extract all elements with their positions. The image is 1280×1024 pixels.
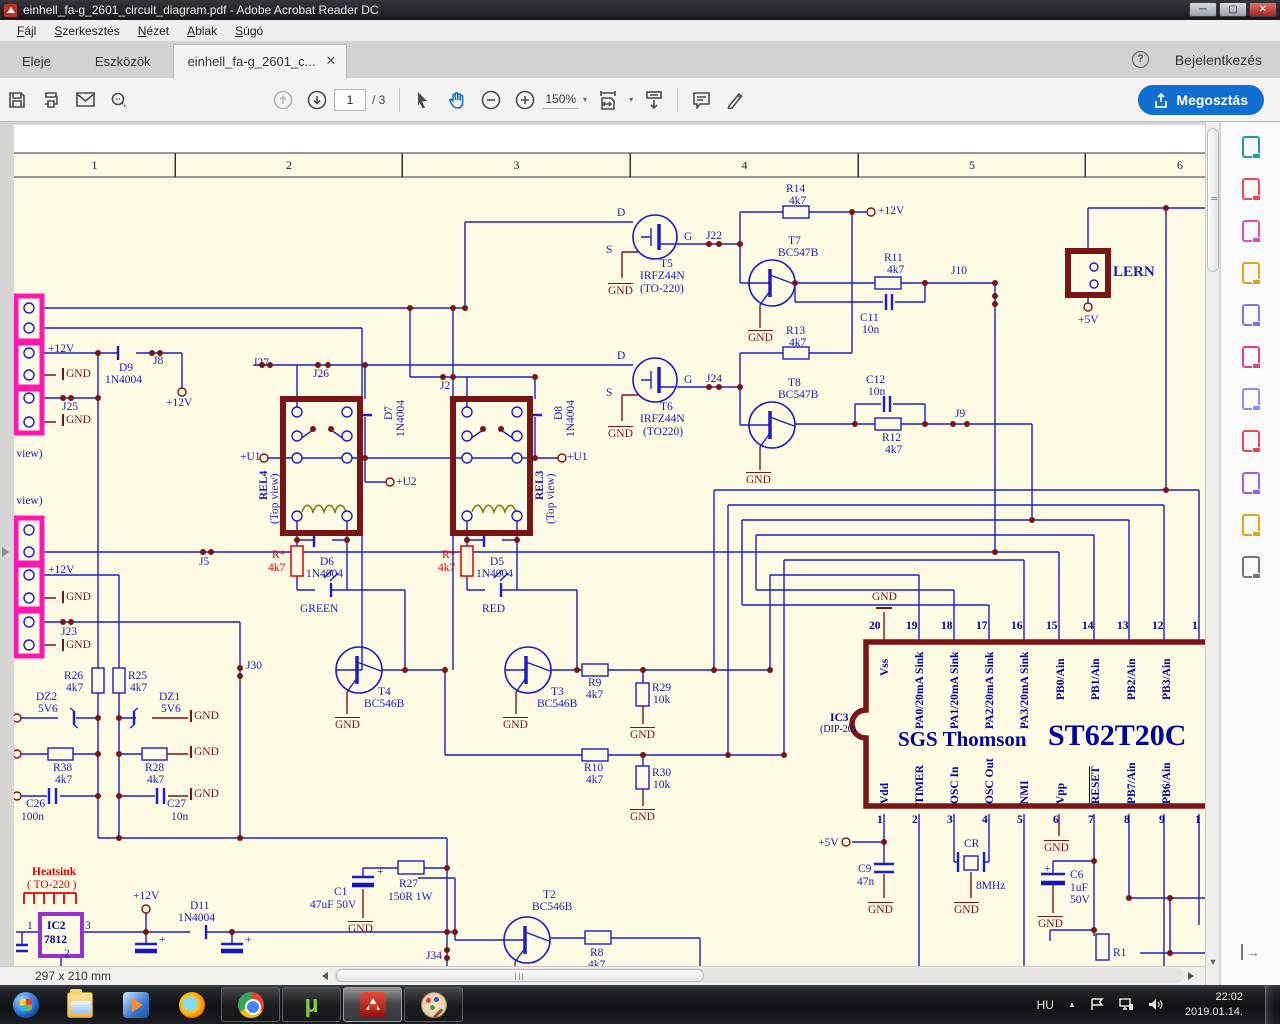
schematic-label: CR xyxy=(964,838,979,850)
maximize-button[interactable]: ▢ xyxy=(1219,2,1247,17)
schematic-label: (Top view) xyxy=(545,473,557,524)
menu-item[interactable]: Fájl xyxy=(8,22,45,40)
schematic-label: GND xyxy=(62,368,91,380)
sign-icon[interactable] xyxy=(1242,472,1260,494)
schematic-label: IC2 xyxy=(47,920,66,932)
schematic-label: GND xyxy=(62,591,91,603)
schematic-label: S xyxy=(606,387,612,399)
schematic-label: 6 xyxy=(1053,814,1059,826)
page-total: / 3 xyxy=(372,93,385,107)
schematic-label: 1 xyxy=(27,920,33,932)
edit-pdf-icon[interactable] xyxy=(1242,220,1260,242)
schematic-label: SGS Thomson xyxy=(898,728,1027,750)
schematic-label: 4k7 xyxy=(885,444,902,456)
schematic-label: C1 xyxy=(334,886,347,898)
schematic-label: PB7/Ain xyxy=(1126,762,1138,804)
horizontal-scrollbar[interactable] xyxy=(334,968,1184,983)
schematic-label: (TO220) xyxy=(643,426,683,438)
schematic-label: GND xyxy=(868,902,893,916)
tab-bar: Eleje Eszközök einhell_fa-g_2601_c... ✕ … xyxy=(0,42,1280,78)
close-tab-icon[interactable]: ✕ xyxy=(326,53,337,69)
schematic-label: 10k xyxy=(653,779,670,791)
collapse-panel-icon[interactable]: → xyxy=(1241,944,1260,960)
schematic-label: T6 xyxy=(660,401,673,413)
schematic-label: + xyxy=(1044,863,1051,875)
schematic-label: J27 xyxy=(253,357,269,369)
schematic-label: GND xyxy=(608,426,633,440)
schematic-label: 18 xyxy=(941,620,953,632)
schematic-label: 5V6 xyxy=(161,703,181,715)
schematic-label: 50V xyxy=(1070,894,1090,906)
send-comments-icon[interactable] xyxy=(1242,514,1260,536)
schematic-label: J25 xyxy=(62,401,78,413)
schematic-label: R25 xyxy=(128,670,147,682)
tab-home[interactable]: Eleje xyxy=(0,45,73,78)
schematic-label: BC547B xyxy=(778,247,818,259)
schematic-label: PB3/Ain xyxy=(1161,658,1173,700)
schematic-label: C27 xyxy=(167,798,186,810)
schematic-label: 1uF xyxy=(1070,882,1088,894)
schematic-label: R12 xyxy=(882,432,901,444)
schematic-label: NMI xyxy=(1019,780,1031,804)
taskbar: HU ▲ 22:02 2019.01.14. xyxy=(0,985,1280,1024)
fill-sign-icon[interactable] xyxy=(1242,346,1260,368)
vertical-scrollbar[interactable]: ▼ xyxy=(1205,122,1219,985)
schematic-label: 3 xyxy=(947,814,953,826)
schematic-label: Heatsink xyxy=(32,866,76,878)
schematic-label: GND xyxy=(608,283,633,297)
schematic-label: 5 xyxy=(1017,814,1023,826)
schematic-label: OSC Out xyxy=(984,758,996,804)
schematic-label: GND xyxy=(348,921,373,935)
schematic-label: 4k7 xyxy=(55,774,72,786)
taskbar-utorrent[interactable] xyxy=(282,987,341,1022)
schematic-label: 1N4004 xyxy=(395,400,407,437)
schematic-label: J23 xyxy=(61,626,77,638)
schematic-label: +5V xyxy=(1078,314,1099,326)
schematic-label: D xyxy=(617,350,625,362)
schematic-label: J30 xyxy=(246,660,262,672)
schematic-label: 16 xyxy=(1011,620,1023,632)
sign-in-link[interactable]: Bejelentkezés xyxy=(1175,52,1262,68)
schematic-label: BC546B xyxy=(532,901,572,913)
schematic-label: G xyxy=(684,231,692,243)
schematic-label: op view) xyxy=(14,495,43,507)
schematic-label: +U1 xyxy=(567,451,588,463)
schematic-label: 100n xyxy=(21,811,44,823)
schematic-label: R26 xyxy=(64,670,83,682)
schematic-label: R29 xyxy=(652,682,671,694)
schematic-label: R27 xyxy=(399,878,418,890)
schematic-label: GND xyxy=(62,639,91,651)
menu-item[interactable]: Szerkesztés xyxy=(45,22,128,40)
schematic-label: C26 xyxy=(26,798,45,810)
navigation-pane-toggle-icon[interactable] xyxy=(2,547,9,557)
schematic-label: BC546B xyxy=(537,698,577,710)
schematic-label: 14 xyxy=(1082,620,1094,632)
schematic-label: 4k7 xyxy=(130,682,147,694)
schematic-label: 15 xyxy=(1046,620,1058,632)
zoom-in-button[interactable] xyxy=(508,84,542,116)
taskbar-firefox[interactable] xyxy=(164,985,220,1024)
schematic-label: J5 xyxy=(199,556,209,568)
action-center-flag-icon[interactable] xyxy=(1090,998,1105,1011)
status-bar: 297 x 210 mm xyxy=(0,966,1205,985)
schematic-label: PA2/20mA Sink xyxy=(984,652,996,729)
schematic-label: GND xyxy=(190,710,219,722)
schematic-label: 4k7 xyxy=(268,562,285,574)
schematic-label: D7 xyxy=(383,406,395,420)
zoom-out-button[interactable] xyxy=(474,84,508,116)
schematic-label: ( TO-220 ) xyxy=(27,879,76,891)
vertical-scrollbar-thumb[interactable] xyxy=(1207,128,1219,272)
page-size-label: 297 x 210 mm xyxy=(35,969,111,983)
schematic-label: 4k7 xyxy=(66,682,83,694)
schematic-label: +12V xyxy=(878,205,904,217)
schematic-label: 47uF 50V xyxy=(310,899,356,911)
schematic-label: DZ2 xyxy=(36,691,57,703)
schematic-label: C6 xyxy=(1070,869,1083,881)
schematic-label: PA0/20mA Sink xyxy=(914,652,926,729)
language-indicator[interactable]: HU xyxy=(1037,998,1054,1012)
schematic-label: R13 xyxy=(786,325,805,337)
menu-item[interactable]: Súgó xyxy=(226,22,272,40)
comment-button[interactable] xyxy=(684,84,718,116)
schematic-label: GND xyxy=(748,330,773,344)
schematic-label: 7812 xyxy=(44,934,67,946)
create-pdf-icon[interactable] xyxy=(1242,178,1260,200)
schematic-label: T4 xyxy=(378,686,391,698)
show-desktop-button[interactable] xyxy=(1265,985,1274,1024)
schematic-label: R28 xyxy=(145,762,164,774)
schematic-label: 13 xyxy=(1117,620,1129,632)
schematic-label: 4 xyxy=(982,814,988,826)
schematic-label: (DIP-20) xyxy=(820,725,856,736)
schematic-label: PB1/Ain xyxy=(1090,658,1102,700)
schematic-label: R10 xyxy=(584,762,603,774)
tab-document[interactable]: einhell_fa-g_2601_c... ✕ xyxy=(173,44,348,78)
taskbar-media-player[interactable] xyxy=(108,985,164,1024)
schematic-label: C9 xyxy=(858,863,871,875)
schematic-label: J34 xyxy=(426,950,442,962)
horizontal-scrollbar-thumb[interactable] xyxy=(336,969,704,982)
schematic-label: PA3/20mA Sink xyxy=(1019,652,1031,729)
schematic-label: Vss xyxy=(879,659,891,676)
close-button[interactable]: ✕ xyxy=(1249,2,1277,17)
schematic-label: J26 xyxy=(313,368,329,380)
schematic-label: T2 xyxy=(543,889,556,901)
schematic-label: T7 xyxy=(788,235,801,247)
schematic-label: IRFZ44N xyxy=(640,413,685,425)
taskbar-paint[interactable] xyxy=(404,987,463,1022)
schematic-label: 9 xyxy=(1159,814,1165,826)
select-tool-button[interactable] xyxy=(406,84,440,116)
taskbar-adobe-reader[interactable] xyxy=(343,987,402,1022)
schematic-label: +12V xyxy=(48,343,74,355)
schematic-label: R* xyxy=(272,549,285,561)
schematic-label: GND xyxy=(746,472,771,486)
schematic-label: IRFZ44N xyxy=(640,270,685,282)
export-pdf-icon[interactable] xyxy=(1242,136,1260,158)
schematic-label: D8 xyxy=(553,406,565,420)
schematic-label: Vpp xyxy=(1055,783,1067,804)
schematic-label: 4k7 xyxy=(588,959,605,966)
scroll-right-icon[interactable] xyxy=(1188,972,1194,980)
schematic-label: 20 xyxy=(869,620,881,632)
schematic-label: LERN xyxy=(1113,265,1155,281)
schematic-label: GND xyxy=(335,717,360,731)
schematic-label: 10k xyxy=(653,694,670,706)
schematic-label: 7 xyxy=(1088,814,1094,826)
search-button[interactable] xyxy=(102,84,136,116)
schematic-label: + xyxy=(159,934,166,946)
taskbar-explorer[interactable] xyxy=(52,985,108,1024)
schematic-label: DZ1 xyxy=(159,691,180,703)
schematic-label: 4k7 xyxy=(147,774,164,786)
schematic-label: J9 xyxy=(955,408,965,420)
schematic-label: C11 xyxy=(860,312,879,324)
tab-tools[interactable]: Eszközök xyxy=(73,45,173,78)
schematic-label: J10 xyxy=(951,265,967,277)
schematic-label: 10n xyxy=(171,811,188,823)
schematic-label: D9 xyxy=(119,362,133,374)
zoom-level[interactable]: 150% xyxy=(542,90,579,109)
schematic-label: 1 xyxy=(1195,814,1201,826)
schematic-label: 4k7 xyxy=(586,689,603,701)
schematic-label: GND xyxy=(503,717,528,731)
schematic-label: R1 xyxy=(1113,947,1126,959)
scroll-left-icon[interactable] xyxy=(322,972,328,980)
menu-bar: FájlSzerkesztésNézetAblakSúgó xyxy=(0,20,1280,42)
schematic-label: GND xyxy=(190,788,219,800)
schematic-label: 10n xyxy=(862,324,879,336)
combine-files-icon[interactable] xyxy=(1242,304,1260,326)
schematic-label: J2 xyxy=(440,380,450,392)
schematic-label: GREEN xyxy=(300,603,338,615)
schematic-label: GND xyxy=(872,591,897,603)
tools-panel: → xyxy=(1220,122,1280,985)
scroll-down-icon[interactable]: ▼ xyxy=(1206,954,1220,970)
comment-icon[interactable] xyxy=(1242,262,1260,284)
minimize-button[interactable]: ─ xyxy=(1189,2,1217,17)
schematic-label: GND xyxy=(630,727,655,741)
menu-item[interactable]: Nézet xyxy=(129,22,178,40)
schematic-label: IC3 xyxy=(830,712,849,724)
title-bar: einhell_fa-g_2601_circuit_diagram.pdf - … xyxy=(0,0,1280,20)
clock[interactable]: 22:02 2019.01.14. xyxy=(1177,990,1251,1020)
protect-icon[interactable] xyxy=(1242,388,1260,410)
network-icon[interactable] xyxy=(1119,998,1134,1011)
schematic-label: 17 xyxy=(976,620,988,632)
optimize-pdf-icon[interactable] xyxy=(1242,430,1260,452)
schematic-label: 4k7 xyxy=(789,337,806,349)
schematic-label: +U2 xyxy=(396,476,417,488)
schematic-label: C12 xyxy=(866,374,885,386)
next-page-button[interactable] xyxy=(300,84,334,116)
schematic-label: 2 xyxy=(64,948,70,960)
more-tools-icon[interactable] xyxy=(1242,556,1260,578)
pdf-app-icon xyxy=(4,4,17,17)
schematic-label: 19 xyxy=(906,620,918,632)
email-button[interactable] xyxy=(68,84,102,116)
schematic-label: 8 xyxy=(1124,814,1130,826)
volume-icon[interactable] xyxy=(1148,998,1163,1011)
schematic-label: 4k7 xyxy=(586,774,603,786)
schematic-label: PB6/Ain xyxy=(1161,762,1173,804)
schematic-label: 12 xyxy=(1152,620,1164,632)
save-button[interactable] xyxy=(0,84,34,116)
taskbar-start-button[interactable] xyxy=(0,985,52,1024)
schematic-label: J22 xyxy=(706,230,722,242)
schematic-label: + xyxy=(245,934,252,946)
schematic-label: (Top view) xyxy=(269,473,281,524)
schematic-label: Vdd xyxy=(879,783,891,804)
schematic-label: J8 xyxy=(153,355,163,367)
schematic-label: 3 xyxy=(85,920,91,932)
document-area: 123456 xyxy=(0,122,1280,985)
schematic-label: GND xyxy=(190,746,219,758)
schematic-label: 10n xyxy=(868,386,885,398)
schematic-label: 1 xyxy=(877,814,883,826)
schematic-label: PA1/20mA Sink xyxy=(949,652,961,729)
schematic-label: 8MHz xyxy=(976,880,1005,892)
schematic-label: R9 xyxy=(588,677,601,689)
schematic-label: 4k7 xyxy=(887,264,904,276)
schematic-label: +U1 xyxy=(240,451,261,463)
help-icon[interactable]: ? xyxy=(1132,51,1149,68)
schematic-label: R11 xyxy=(884,252,903,264)
schematic-label: D6 xyxy=(320,556,334,568)
scrolling-mode-button[interactable] xyxy=(637,84,671,116)
schematic-label: J24 xyxy=(706,373,722,385)
schematic-label: T8 xyxy=(788,377,801,389)
schematic-label: 1N4004 xyxy=(178,912,215,924)
print-button[interactable] xyxy=(34,84,68,116)
share-button[interactable]: Megosztás xyxy=(1138,85,1264,115)
schematic-label: GND xyxy=(1044,840,1069,854)
schematic-label: 150R 1W xyxy=(388,891,432,903)
schematic-label: +5V xyxy=(818,837,839,849)
schematic-label: BC547B xyxy=(778,389,818,401)
schematic-label: 4k7 xyxy=(438,562,455,574)
previous-page-button[interactable] xyxy=(266,84,300,116)
schematic-label: op view) xyxy=(14,448,43,460)
highlight-button[interactable] xyxy=(718,84,752,116)
schematic-label: GND xyxy=(954,902,979,916)
schematic-label: S xyxy=(606,244,612,256)
schematic-label: RED xyxy=(482,603,505,615)
schematic-label: G xyxy=(684,374,692,386)
schematic-label: 5V6 xyxy=(38,703,58,715)
pdf-page[interactable]: 123456 xyxy=(14,125,1205,966)
schematic-label: 1N4004 xyxy=(306,568,343,580)
schematic-label: +12V xyxy=(166,397,192,409)
toolbar: / 3 150% ▾ ▾ Megosztás xyxy=(0,78,1280,122)
schematic-label: R14 xyxy=(786,183,805,195)
schematic-label: R8 xyxy=(590,947,603,959)
schematic-label: R30 xyxy=(652,767,671,779)
schematic-label: R38 xyxy=(53,762,72,774)
schematic-label: 4k7 xyxy=(789,195,806,207)
schematic-label: 1N4004 xyxy=(476,568,513,580)
fit-dropdown-icon[interactable]: ▾ xyxy=(629,95,633,104)
hand-tool-button[interactable] xyxy=(440,84,474,116)
schematic-label: 1 xyxy=(1192,620,1198,632)
schematic-label: RESET xyxy=(1090,766,1102,804)
fit-width-button[interactable] xyxy=(591,84,625,116)
schematic-label: T3 xyxy=(551,686,564,698)
schematic-label: GND xyxy=(630,809,655,823)
schematic-label: +12V xyxy=(133,890,159,902)
schematic-label: T5 xyxy=(660,258,673,270)
schematic-label: D5 xyxy=(490,556,504,568)
schematic-label: OSC In xyxy=(949,767,961,804)
schematic-label: GND xyxy=(1038,916,1063,930)
hidden-icons-icon[interactable]: ▲ xyxy=(1068,1000,1076,1009)
schematic-label: 1N4004 xyxy=(565,400,577,437)
schematic-label: + xyxy=(377,866,384,878)
schematic-label: R* xyxy=(442,549,455,561)
schematic-label: PB0/Ain xyxy=(1055,658,1067,700)
schematic-label: D11 xyxy=(190,900,209,912)
schematic-label: +12V xyxy=(48,564,74,576)
schematic-label: ST62T20C xyxy=(1048,720,1186,752)
schematic-label: 47n xyxy=(857,876,874,888)
schematic-label: BC546B xyxy=(364,698,404,710)
window-title: einhell_fa-g_2601_circuit_diagram.pdf - … xyxy=(23,3,379,17)
schematic-label: TIMER xyxy=(914,765,926,804)
schematic-label: GND xyxy=(62,414,91,426)
schematic-label: (TO-220) xyxy=(640,283,684,295)
schematic-label: PB2/Ain xyxy=(1126,658,1138,700)
menu-item[interactable]: Ablak xyxy=(178,22,226,40)
page-number-input[interactable] xyxy=(334,89,366,111)
taskbar-chrome[interactable] xyxy=(221,987,280,1022)
schematic-label: D xyxy=(617,207,625,219)
schematic-label: 1N4004 xyxy=(105,374,142,386)
zoom-dropdown-icon[interactable]: ▾ xyxy=(583,95,587,104)
system-tray: HU ▲ 22:02 2019.01.14. xyxy=(1037,985,1280,1024)
schematic-label: 2 xyxy=(912,814,918,826)
